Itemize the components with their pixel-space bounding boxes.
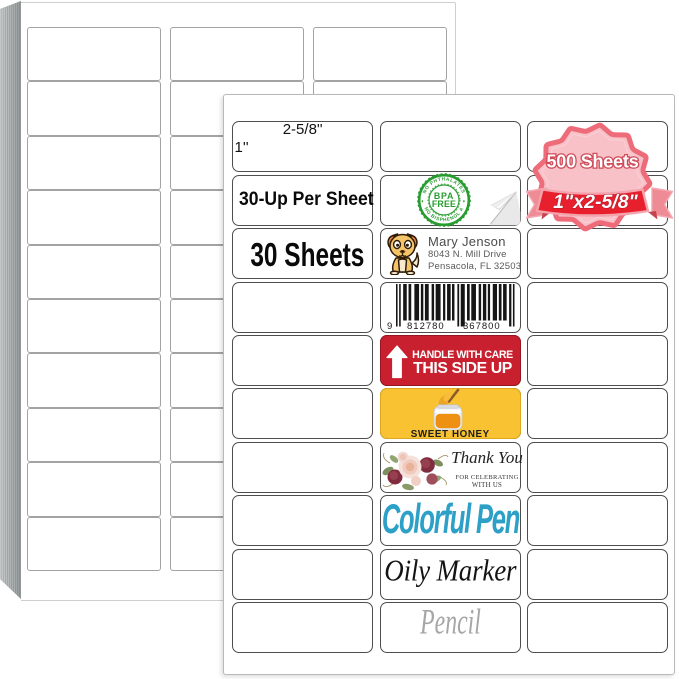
svg-text:FREE: FREE xyxy=(432,199,456,209)
svg-text:500 Sheets: 500 Sheets xyxy=(546,151,638,171)
svg-text:1"x2-5/8": 1"x2-5/8" xyxy=(553,191,638,213)
